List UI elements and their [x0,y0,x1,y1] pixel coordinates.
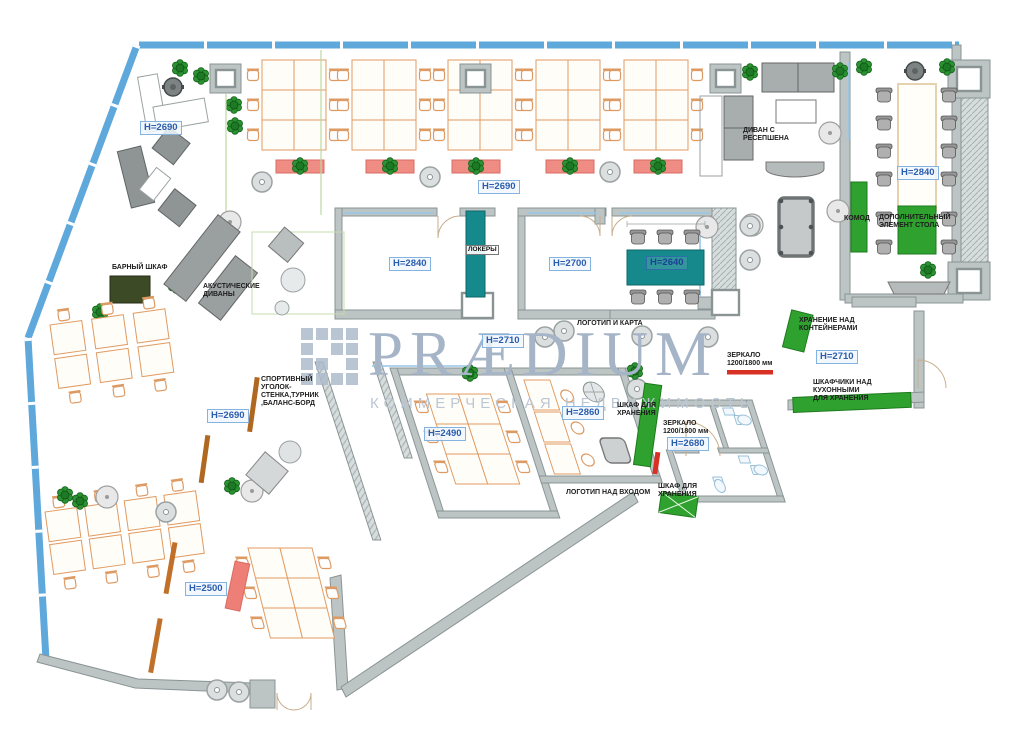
floor-plan-drawing [0,0,1024,746]
board-strip [164,542,178,594]
open-office-bottom [43,295,349,702]
table-extra-element [898,206,936,254]
red-bench [225,561,250,611]
komod-cabinet [851,182,867,252]
meeting-table [627,250,704,285]
kitchen-storage [727,310,911,413]
desk-cluster [48,295,176,404]
sport-board [199,435,211,483]
wc-block [650,400,785,502]
board-strip [148,618,162,673]
floor-plan: PRÆDIUM КОММЕРЧЕСКАЯ НЕДВИЖИМОСТЬ H=2690… [0,0,1024,746]
lockers-cabinet [466,211,485,297]
kitchen-mirror [727,370,773,375]
desk-cluster [233,548,349,638]
bar-and-acoustic [92,215,344,321]
sport-board [247,377,260,432]
billiard-table [779,198,814,256]
meeting-room [627,221,705,304]
dining-room [851,62,957,294]
